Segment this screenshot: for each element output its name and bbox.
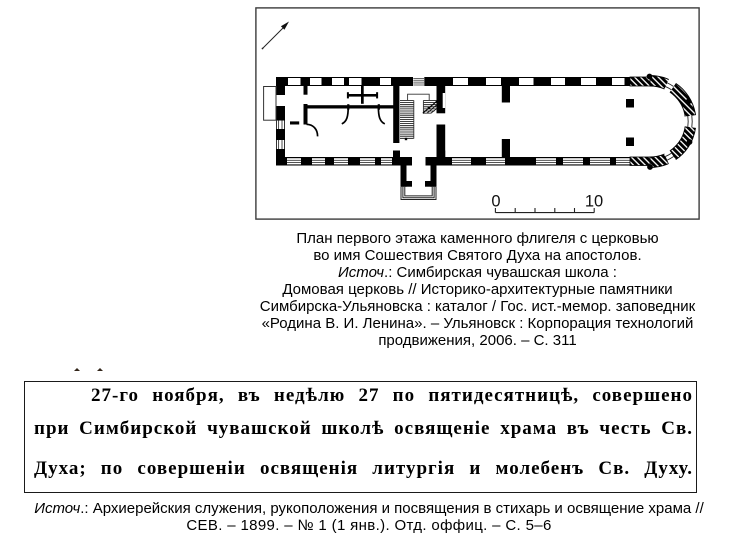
svg-text:10: 10 — [585, 193, 603, 211]
svg-text:0: 0 — [491, 193, 500, 211]
